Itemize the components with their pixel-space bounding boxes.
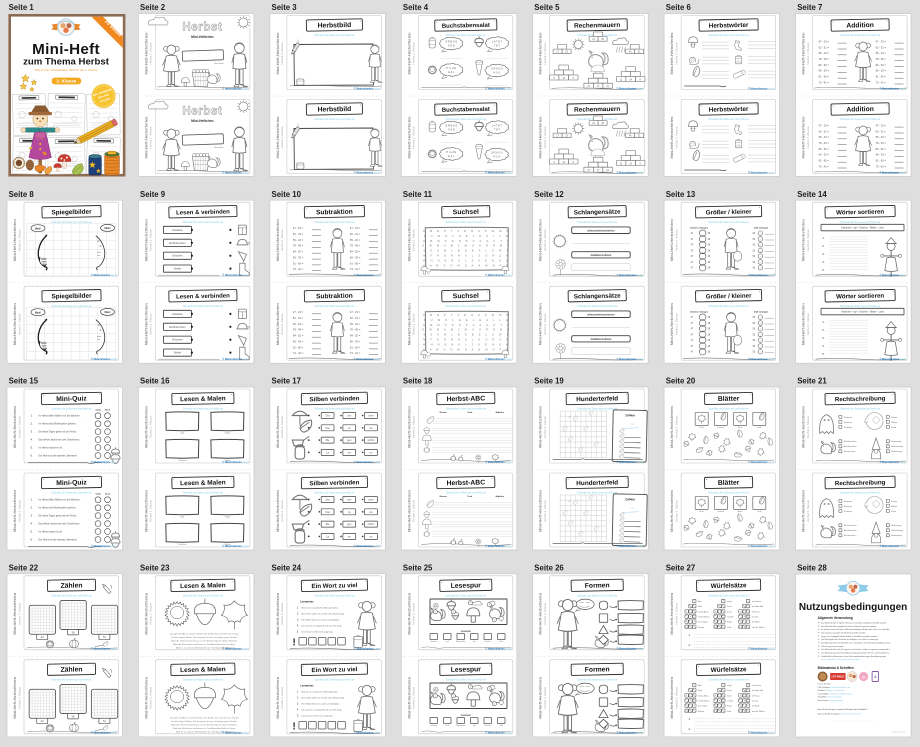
svg-text:schirm: schirm	[367, 439, 374, 442]
svg-text:Mini-Heft-Herbstferien: Mini-Heft-Herbstferien	[538, 219, 543, 262]
svg-text:73 - 41 =: 73 - 41 =	[819, 80, 830, 84]
svg-text:Mini-Heft-Herbstferien: Mini-Heft-Herbstferien	[275, 592, 280, 635]
svg-text:Laub: Laub	[445, 641, 449, 643]
svg-text:73 - 41 =: 73 - 41 =	[350, 267, 361, 271]
svg-text:Seite 10: Seite 10	[272, 190, 302, 199]
svg-text:84 - 52 =: 84 - 52 =	[350, 250, 361, 254]
svg-text:Herbst 2. Klasse: Herbst 2. Klasse	[149, 416, 153, 438]
svg-text:P I L Z E: P I L Z E	[447, 67, 457, 70]
svg-text:Seite 3: Seite 3	[272, 3, 298, 12]
svg-text:Regenschirm: Regenschirm	[456, 641, 466, 643]
svg-text:© Materialtanten wiese: © Materialtanten wiese	[91, 274, 118, 277]
svg-text:Mini-Heft-Herbstferien: Mini-Heft-Herbstferien	[801, 405, 806, 448]
svg-text:Lesen & Malen: Lesen & Malen	[180, 582, 226, 590]
svg-text:47 - 23 =: 47 - 23 =	[876, 40, 887, 44]
svg-text:Schneide die Seiten aus und he: Schneide die Seiten aus und hefte sie	[840, 408, 881, 411]
svg-text:Mini-Heft-Herbstferien: Mini-Heft-Herbstferien	[143, 32, 148, 75]
svg-text:im Haus: im Haus	[752, 611, 760, 613]
svg-text:Spiegelbilder: Spiegelbilder	[51, 209, 92, 217]
svg-text:Fühen: Fühen	[891, 417, 898, 419]
svg-text:Nutzungsbedingungen: Nutzungsbedingungen	[799, 602, 907, 613]
svg-text:Mini-Heft-Herbstferien: Mini-Heft-Herbstferien	[12, 592, 17, 635]
svg-text:55 - 24 =: 55 - 24 =	[819, 51, 830, 55]
svg-text:Schneide die Seiten aus und he: Schneide die Seiten aus und hefte sie	[840, 221, 881, 224]
svg-text:Seite 11: Seite 11	[403, 190, 433, 199]
svg-text:Lesen & Malen: Lesen & Malen	[180, 395, 226, 403]
svg-text:LTR WRLD: LTR WRLD	[832, 676, 845, 679]
svg-text:wirbastelneinendrachen: wirbastelneinendrachen	[587, 229, 615, 232]
svg-text:84 - 52 =: 84 - 52 =	[819, 63, 830, 67]
svg-text:Mini-Heft-Herbstferien: Mini-Heft-Herbstferien	[406, 32, 411, 75]
svg-text:Kastanie: Kastanie	[172, 228, 183, 232]
svg-text:© Materialtanten wiese: © Materialtanten wiese	[91, 648, 118, 651]
svg-text:© Materialtanten wiese: © Materialtanten wiese	[617, 274, 644, 277]
svg-text:Mini-Heft-Herbstferien: Mini-Heft-Herbstferien	[669, 405, 674, 448]
svg-text:Seite 2: Seite 2	[140, 3, 166, 12]
svg-text:Veröffentlichte Elemente ist e: Veröffentlichte Elemente ist eine Nutzun…	[821, 655, 887, 658]
svg-text:Seite 6: Seite 6	[666, 3, 692, 12]
svg-text:Herbst: Herbst	[182, 22, 222, 34]
svg-text:Föhen: Föhen	[891, 422, 898, 424]
svg-text:Seite 20: Seite 20	[666, 377, 696, 386]
svg-text:Würfelsätze: Würfelsätze	[711, 582, 747, 590]
svg-text:© Materialtanten wiese: © Materialtanten wiese	[748, 87, 775, 90]
svg-text:Schriften: Andika | Grundschri: Schriften: Andika | Grundschrift	[818, 689, 845, 692]
svg-text:© Materialtanten wiese: © Materialtanten wiese	[222, 461, 249, 464]
svg-text:Das Material darf in eigenen K: Das Material darf in eigenen Klassen ver…	[821, 621, 887, 624]
svg-text:Mini-Heft-Herbstferien: Mini-Heft-Herbstferien	[12, 405, 17, 448]
svg-text:Das Material darf auf Passwort: Das Material darf auf Passwortbereich ge…	[821, 652, 889, 655]
svg-text:Herbst 2. Klasse: Herbst 2. Klasse	[149, 229, 153, 251]
svg-text:ter: ter	[348, 451, 351, 454]
svg-text:chen: chen	[368, 415, 374, 418]
svg-text:malt: malt	[727, 626, 731, 629]
svg-text:© Materialwiese: © Materialwiese	[891, 731, 906, 734]
svg-text:Silben verbinden: Silben verbinden	[309, 395, 359, 403]
svg-text:73 - 41 =: 73 - 41 =	[876, 80, 887, 84]
svg-text:© Materialtanten wiese: © Materialtanten wiese	[748, 274, 775, 277]
svg-text:Herbst 2. Klasse: Herbst 2. Klasse	[280, 602, 284, 624]
svg-text:Lesespur: Lesespur	[461, 631, 471, 633]
svg-text:E Z L: E Z L	[448, 71, 455, 74]
svg-text:Tauschung ersetzt werden.: Tauschung ersetzt werden.	[821, 645, 845, 648]
svg-text:Mini-Heft-Herbstferien: Mini-Heft-Herbstferien	[669, 592, 674, 635]
svg-text:Hast du eine Frage zu meinem M: Hast du eine Frage zu meinem Material od…	[818, 708, 869, 711]
svg-text:che: che	[347, 415, 352, 418]
svg-text:Schneide die Seiten aus und he: Schneide die Seiten aus und hefte sie	[183, 408, 224, 411]
svg-text:Mini-Heft-Herbstferien: Mini-Heft-Herbstferien	[275, 219, 280, 262]
svg-text:Herbst 2. Klasse: Herbst 2. Klasse	[17, 602, 21, 624]
svg-text:47 - 23 =: 47 - 23 =	[350, 226, 361, 230]
svg-text:Eichhörnchen: Eichhörnchen	[844, 440, 858, 443]
svg-text:Seite 19: Seite 19	[534, 377, 564, 386]
svg-text:Seite 25: Seite 25	[403, 564, 433, 573]
svg-text:Aichhörnchen: Aichhörnchen	[844, 445, 858, 448]
svg-text:© Materialtanten wiese: © Materialtanten wiese	[880, 274, 907, 277]
svg-text:N F H D R H S L G O R Z N: N F H D R H S L G O R Z N	[423, 254, 510, 258]
svg-text:© Materialtanten wiese: © Materialtanten wiese	[354, 648, 381, 651]
svg-text:S A B O D M N A N M N F R: S A B O D M N A N M N F R	[423, 263, 510, 267]
svg-text:2.: 2.	[31, 422, 33, 426]
svg-text:!: !	[292, 636, 296, 648]
svg-text:Blatt ist ein zusätzliches Wor: Blatt ist ein zusätzliches Wort gefunden…	[301, 607, 338, 610]
svg-text:73 - 41 =: 73 - 41 =	[293, 267, 304, 271]
svg-text:Schneide die Seiten aus und he: Schneide die Seiten aus und hefte sie	[709, 221, 750, 224]
svg-text:Herbst 2. Klasse: Herbst 2. Klasse	[543, 229, 547, 251]
svg-text:4.: 4.	[31, 438, 33, 442]
svg-text:Mini-Heft-Herbstferien: Mini-Heft-Herbstferien	[801, 32, 806, 75]
svg-text:Seite 26: Seite 26	[534, 564, 564, 573]
svg-text:Seite 13: Seite 13	[666, 190, 696, 199]
svg-text:auf dem Hof: auf dem Hof	[752, 606, 764, 608]
svg-text:Das Material darf ausgedruckt: Das Material darf ausgedruckt und an Unt…	[821, 625, 877, 628]
svg-text:66 - 33 =: 66 - 33 =	[876, 69, 887, 73]
svg-text:Lernwörter:: Lernwörter:	[300, 600, 314, 603]
svg-text:47 - 23 =: 47 - 23 =	[819, 40, 830, 44]
svg-text:K U W O L G E L H A L L H: K U W O L G E L H A L L H	[424, 234, 510, 238]
svg-text:3.: 3.	[297, 619, 299, 622]
svg-text:Mini-Heft-Herbstferien: Mini-Heft-Herbstferien	[406, 219, 411, 262]
svg-text:© Materialtanten wiese: © Materialtanten wiese	[354, 461, 381, 464]
svg-text:Herbst 2. Klasse: Herbst 2. Klasse	[806, 42, 810, 64]
svg-text:4.: 4.	[297, 625, 299, 628]
svg-text:© Materialtanten wiese: © Materialtanten wiese	[617, 461, 644, 464]
svg-text:Seite 23: Seite 23	[140, 564, 170, 573]
svg-text:Mini-Heft-Herbstferien: Mini-Heft-Herbstferien	[669, 32, 674, 75]
svg-text:Seite 12: Seite 12	[534, 190, 564, 199]
svg-text:Schneide die Seiten aus und he: Schneide die Seiten aus und hefte sie	[577, 221, 618, 224]
svg-text:5: 5	[494, 620, 495, 622]
svg-text:fliegt: fliegt	[727, 621, 732, 624]
svg-text:Herbst 2. Klasse: Herbst 2. Klasse	[17, 416, 21, 438]
svg-text:55 - 24 =: 55 - 24 =	[293, 238, 304, 242]
svg-text:Der Herbst ist die warmste Jah: Der Herbst ist die warmste Jahreszeit.	[39, 455, 78, 458]
svg-text:1.: 1.	[822, 236, 825, 240]
svg-text:Kastanje: Kastanje	[844, 426, 853, 429]
svg-text:Bildmaterial & Schriften: Bildmaterial & Schriften	[818, 666, 854, 670]
svg-text:Dra: Dra	[326, 415, 331, 418]
svg-text:© Materialtanten wiese: © Materialtanten wiese	[485, 648, 512, 651]
svg-text:Herbst 2. Klasse: Herbst 2. Klasse	[674, 602, 678, 624]
svg-text:1.: 1.	[31, 414, 33, 418]
svg-text:Föhn: Föhn	[891, 427, 897, 429]
svg-text:Zahl eintragen: Zahl eintragen	[754, 226, 769, 229]
svg-text:62 - 31 =: 62 - 31 =	[350, 232, 361, 236]
svg-text:Buchstabensalat: Buchstabensalat	[442, 23, 490, 30]
svg-text:66 - 33 =: 66 - 33 =	[819, 69, 830, 73]
svg-text:62 - 31 =: 62 - 31 =	[293, 232, 304, 236]
svg-text:Schneide die Seiten aus und he: Schneide die Seiten aus und hefte sie	[183, 594, 224, 597]
svg-text:4: 4	[489, 605, 490, 607]
svg-text:Herbstwörter: Herbstwörter	[709, 22, 749, 30]
svg-text:Seite 9: Seite 9	[140, 190, 166, 199]
svg-text:Herbstbild: Herbstbild	[318, 22, 352, 30]
svg-text:Mini-Heft-Herbstferien: Mini-Heft-Herbstferien	[669, 219, 674, 262]
svg-text:Mini-Heft-Herbstferien: Mini-Heft-Herbstferien	[275, 32, 280, 75]
svg-text:Drachen: Drachen	[172, 254, 183, 258]
svg-text:Mini-Heft-Herbstferien: Mini-Heft-Herbstferien	[12, 219, 17, 262]
svg-text:1.: 1.	[689, 633, 692, 637]
svg-text:E R B H S: E R B H S	[446, 41, 458, 44]
svg-text:Kastanien - Igel - Drachen - B: Kastanien - Igel - Drachen - Blätter - L…	[841, 227, 884, 230]
svg-text:3: 3	[470, 603, 471, 605]
svg-text:Herbst 2. Klasse: Herbst 2. Klasse	[280, 42, 284, 64]
svg-text:84 - 52 =: 84 - 52 =	[876, 63, 887, 67]
svg-text:Mini-Heft-Herbstferien: Mini-Heft-Herbstferien	[406, 405, 411, 448]
svg-text:Stiefel: Stiefel	[174, 267, 182, 271]
svg-text:Zeichen eintragen: Zeichen eintragen	[690, 226, 709, 229]
svg-text:W H N E B K L Z K E N G M: W H N E B K L Z K E N G M	[423, 258, 510, 262]
svg-text:Seite 15: Seite 15	[9, 377, 39, 386]
svg-text:© Materialtanten wiese: © Materialtanten wiese	[354, 274, 381, 277]
svg-text:1.: 1.	[297, 607, 299, 610]
svg-text:Herbst-ABC: Herbst-ABC	[446, 395, 485, 403]
svg-text:© Materialtanten wiese: © Materialtanten wiese	[617, 87, 644, 90]
svg-text:© Materialtanten wiese: © Materialtanten wiese	[222, 87, 249, 90]
svg-text:D W M A M Z M U H R R M R: D W M A M Z M U H R R M R	[422, 244, 511, 248]
svg-text:gen: gen	[347, 439, 352, 442]
svg-text:© Materialtanten wiese: © Materialtanten wiese	[222, 274, 249, 277]
svg-text:im Wald: im Wald	[752, 622, 760, 624]
svg-text:Seite 28: Seite 28	[797, 564, 827, 573]
svg-text:Male die reife Kastanie braun: Male die reife Kastanie braun an. Die Ei…	[171, 639, 238, 642]
svg-text:Mein Name: Mein Name	[214, 63, 223, 65]
svg-text:Herbst 2. Klasse: Herbst 2. Klasse	[412, 602, 416, 624]
svg-text:Eiche: Eiche	[700, 427, 704, 429]
svg-text:Zahlen: Zahlen	[625, 413, 635, 417]
svg-text:91 - 60 =: 91 - 60 =	[293, 261, 304, 265]
svg-text:Seite 1: Seite 1	[9, 3, 35, 12]
svg-text:G M M O D N P U K G K T L: G M M O D N P U K G K T L	[423, 239, 511, 243]
svg-text:Herbswerg: Herbswerg	[891, 440, 902, 443]
svg-text:Seite 24: Seite 24	[272, 564, 302, 573]
svg-text:Mini-Heft-Herbstferien: Mini-Heft-Herbstferien	[538, 405, 543, 448]
svg-text:Das Wetter ändert hat viele Ge: Das Wetter ändert hat viele Geschirmen.	[39, 439, 81, 442]
svg-text:S G K M L B D B S L U W T: S G K M L B D B S L U W T	[423, 249, 510, 253]
svg-text:© Materialtanten wiese: © Materialtanten wiese	[91, 461, 118, 464]
svg-text:Seite 21: Seite 21	[797, 377, 827, 386]
svg-text:Addition: Addition	[846, 22, 874, 30]
svg-text:Herbst 2. Klasse: Herbst 2. Klasse	[280, 229, 284, 251]
svg-text:Formen: Formen	[585, 582, 610, 590]
svg-text:Herbst 2. Klasse: Herbst 2. Klasse	[412, 229, 416, 251]
svg-text:Schneide die Seiten aus und he: Schneide die Seiten aus und hefte sie	[709, 594, 750, 597]
svg-text:Linde: Linde	[757, 427, 761, 429]
svg-text:Illustrationen: educlips-desig: Illustrationen: educlips-design	[818, 699, 844, 702]
svg-text:Herbst 2. Klasse: Herbst 2. Klasse	[806, 229, 810, 251]
svg-text:91 - 60 =: 91 - 60 =	[876, 75, 887, 79]
svg-text:© Materialtanten wiese: © Materialtanten wiese	[485, 461, 512, 464]
svg-text:Wörter sortieren: Wörter sortieren	[836, 208, 884, 216]
svg-text:Seite 22: Seite 22	[9, 564, 39, 573]
svg-text:© Materialtanten wiese: © Materialtanten wiese	[748, 461, 775, 464]
svg-text:Ahorn: Ahorn	[738, 426, 743, 429]
svg-text:Adjektiv: Adjektiv	[496, 411, 505, 414]
svg-text:S H B: S H B	[448, 45, 455, 48]
svg-text:T B T: T B T	[494, 44, 500, 47]
svg-text:2.: 2.	[822, 244, 825, 248]
svg-text:3.: 3.	[31, 430, 33, 434]
svg-text:Kastanie: Kastanie	[718, 426, 725, 429]
svg-text:62 - 31 =: 62 - 31 =	[819, 45, 830, 49]
svg-text:Mein Wort stellte ich schnell: Mein Wort stellte ich schnell und selbst…	[301, 613, 344, 616]
svg-text:91 - 60 =: 91 - 60 =	[819, 75, 830, 79]
svg-text:Die Mona Tagen gehst mit ein F: Die Mona Tagen gehst mit ein Freind.	[39, 431, 77, 434]
svg-text:Seite 16: Seite 16	[140, 377, 170, 386]
svg-text:Herbst 2. Klasse: Herbst 2. Klasse	[806, 416, 810, 438]
svg-text:Cover-Bilder: www.kate.hadfiel: Cover-Bilder: www.kate.hadfield.designs	[818, 692, 853, 695]
svg-text:Der Vogel: Der Vogel	[698, 621, 708, 624]
svg-text:Seite 18: Seite 18	[403, 377, 433, 386]
svg-text:Emma: Emma	[698, 627, 705, 629]
svg-text:Schneide die Seiten aus und he: Schneide die Seiten aus und hefte sie	[709, 408, 750, 411]
svg-text:Herbst 2. Klasse: Herbst 2. Klasse	[674, 416, 678, 438]
svg-text:Mini-Heft-Herbstferien: Mini-Heft-Herbstferien	[275, 405, 280, 448]
svg-text:Onkel Murat: Onkel Murat	[698, 616, 710, 619]
svg-text:© Materialtanten wiese: © Materialtanten wiese	[222, 648, 249, 651]
svg-text:Seite 5: Seite 5	[534, 3, 560, 12]
svg-text:Schneide die Seiten aus und he: Schneide die Seiten aus und hefte sie	[314, 221, 355, 224]
svg-text:Herbstzwerg: Herbstzwerg	[891, 445, 904, 448]
svg-text:Drachen: Drachen	[178, 459, 187, 462]
svg-text:78 - 45 =: 78 - 45 =	[819, 57, 830, 61]
svg-text:Schneide die Seiten aus und he: Schneide die Seiten aus und hefte sie	[314, 408, 355, 411]
svg-text:Rechenmauern: Rechenmauern	[574, 22, 620, 30]
svg-text:Lesen & verbinden: Lesen & verbinden	[176, 209, 230, 216]
svg-text:Mini-Quiz: Mini-Quiz	[56, 395, 87, 403]
svg-text:Schneide die Seiten aus und he: Schneide die Seiten aus und hefte sie	[709, 34, 750, 37]
svg-text:Seite 14: Seite 14	[797, 190, 827, 199]
svg-text:78 - 45 =: 78 - 45 =	[350, 244, 361, 248]
svg-text:Suchsel: Suchsel	[453, 209, 479, 217]
svg-text:66 - 33 =: 66 - 33 =	[293, 255, 304, 259]
svg-text:Vogel: Vogel	[225, 433, 231, 435]
svg-text:66 - 33 =: 66 - 33 =	[350, 255, 361, 259]
svg-text:© Materialtanten wiese: © Materialtanten wiese	[880, 461, 907, 464]
svg-text:im Garten: im Garten	[752, 600, 762, 603]
svg-text:Seite 17: Seite 17	[272, 377, 301, 386]
svg-text:Schneide die Seiten aus und he: Schneide die Seiten aus und hefte sie	[577, 408, 618, 411]
svg-text:Mini-Heft-Herbstferien: Mini-Heft-Herbstferien	[143, 592, 148, 635]
svg-text:© Materialtanten wiese: © Materialtanten wiese	[485, 87, 512, 90]
svg-text:Herbst 2. Klasse: Herbst 2. Klasse	[543, 42, 547, 64]
svg-text:Seite 8: Seite 8	[9, 190, 35, 199]
svg-text:Herr Müller Bauman wartet am S: Herr Müller Bauman wartet am Spielplatz.	[301, 619, 340, 622]
svg-text:Im Herbst wird Weihnachten gef: Im Herbst wird Weihnachten gefeiert.	[39, 423, 77, 426]
svg-text:Herbst 2. Klasse: Herbst 2. Klasse	[412, 416, 416, 438]
svg-text:Im Herbst fallen Blätter von d: Im Herbst fallen Blätter von den Bäumen.	[39, 415, 81, 418]
svg-text:© Materialtanten wiese: © Materialtanten wiese	[748, 648, 775, 651]
svg-text:2.: 2.	[689, 643, 692, 647]
svg-text:Herbst 2. Klasse: Herbst 2. Klasse	[17, 229, 21, 251]
svg-text:Herbst 2. Klasse: Herbst 2. Klasse	[149, 42, 153, 64]
svg-text:Schneide die Seiten aus und he: Schneide die Seiten aus und hefte sie	[314, 594, 355, 597]
svg-text:Male!: Male!	[104, 227, 110, 230]
svg-text:Schneide die Seiten aus und he: Schneide die Seiten aus und hefte sie	[314, 34, 355, 37]
svg-text:Verb: Verb	[467, 412, 472, 414]
svg-text:Mini-Heft-Herbstferien: Mini-Heft-Herbstferien	[143, 405, 148, 448]
svg-text:kp: kp	[862, 675, 866, 679]
svg-text:© Materialtanten wiese: © Materialtanten wiese	[617, 648, 644, 651]
svg-text:Die Igel und Mäuse sind im Her: Die Igel und Mäuse sind im Herbst sehr f…	[170, 632, 240, 635]
svg-text:Herbst 2. Klasse: Herbst 2. Klasse	[412, 42, 416, 64]
svg-text:zum Thema Herbst: zum Thema Herbst	[23, 56, 110, 67]
svg-text:6.: 6.	[31, 454, 33, 458]
svg-text:Eichhörnchen: Eichhörnchen	[169, 241, 186, 245]
svg-text:Schneide die Seiten aus und he: Schneide die Seiten aus und hefte sie	[51, 408, 92, 411]
svg-text:2: 2	[453, 612, 454, 614]
svg-text:Seite 7: Seite 7	[797, 3, 822, 12]
svg-text:Rechtschreibung: Rechtschreibung	[835, 395, 886, 403]
svg-text:lacht: lacht	[727, 605, 732, 608]
svg-text:55 - 24 =: 55 - 24 =	[350, 238, 361, 242]
svg-text:Schneide die Seiten aus und he: Schneide die Seiten aus und hefte sie	[577, 594, 618, 597]
svg-text:hallo@materialwiese.de: hallo@materialwiese.de	[840, 713, 862, 716]
svg-text:Logo- und Copyright-Inhalte dü: Logo- und Copyright-Inhalte dürfen in de…	[821, 635, 878, 638]
svg-text:Mini-Heft-Herbstferien: Mini-Heft-Herbstferien	[538, 592, 543, 635]
svg-text:Hunderterfeld: Hunderterfeld	[576, 395, 618, 403]
svg-text:Schneide die Seiten aus und he: Schneide die Seiten aus und hefte sie	[446, 221, 487, 224]
svg-text:62 - 31 =: 62 - 31 =	[876, 45, 887, 49]
svg-text:5.: 5.	[31, 446, 33, 450]
svg-text:Herbst 2. Klasse: Herbst 2. Klasse	[149, 602, 153, 624]
svg-text:Herbst 2. Klasse: Herbst 2. Klasse	[280, 416, 284, 438]
svg-text:5.: 5.	[822, 268, 825, 272]
svg-text:2.: 2.	[297, 613, 299, 616]
svg-text:Subtraktion: Subtraktion	[316, 209, 353, 217]
svg-text:auf der Wiese: auf der Wiese	[752, 626, 766, 629]
svg-text:D R A C H: D R A C H	[491, 68, 503, 71]
svg-text:47 - 23 =: 47 - 23 =	[293, 226, 304, 230]
svg-text:Male die Eichel grün und braun: Male die Eichel grün und braun an. Das A…	[173, 643, 236, 646]
svg-text:richtig: richtig	[95, 408, 101, 411]
svg-text:L A T B T: L A T B T	[492, 40, 503, 43]
svg-text:© Materialtanten wiese: © Materialtanten wiese	[485, 274, 512, 277]
svg-text:84 - 52 =: 84 - 52 =	[293, 250, 304, 254]
svg-text:Tante Anna: Tante Anna	[698, 610, 709, 613]
svg-text:Herbtswerg: Herbtswerg	[891, 450, 902, 453]
svg-text:Schlangensätze: Schlangensätze	[574, 208, 621, 216]
svg-text:78 - 45 =: 78 - 45 =	[293, 244, 304, 248]
svg-text:Schneide die Seiten aus und he: Schneide die Seiten aus und hefte sie	[51, 594, 92, 597]
svg-text:kein gespeist auf oder elle We: kein gespeist auf oder elle Weiterverwen…	[821, 632, 866, 635]
svg-text:Drachen: Drachen	[485, 641, 491, 643]
svg-text:78 - 45 =: 78 - 45 =	[876, 57, 887, 61]
svg-text:H C A: H C A	[494, 72, 501, 75]
svg-text:Dann schreibe mir gerne:: Dann schreibe mir gerne:	[818, 714, 841, 716]
svg-text:tanzt: tanzt	[727, 610, 732, 613]
svg-text:Kita-Bilder: lehrermarktplatz: Kita-Bilder: lehrermarktplatz	[818, 696, 842, 699]
svg-text:Lizenz & Preise:: Lizenz & Preise:	[818, 684, 832, 686]
svg-text:Das Material darf nicht Woande: Das Material darf nicht Woanders als, ko…	[821, 642, 890, 645]
svg-text:91 - 60 =: 91 - 60 =	[350, 261, 361, 265]
svg-text:Herbst 2. Klasse: Herbst 2. Klasse	[674, 42, 678, 64]
svg-text:Lesespur: Lesespur	[451, 582, 482, 590]
svg-text:Mini-Heft-Herbstferien: Mini-Heft-Herbstferien	[801, 219, 806, 262]
svg-text:Das Material darf nicht als ei: Das Material darf nicht als eigenes zum …	[821, 648, 891, 651]
svg-text:für den langen Winter. Die Kas: für den langen Winter. Die Kastanie hat …	[171, 636, 237, 639]
svg-text:Es können weiter Schüler- & El: Es können weiter Schüler- & Elternvertei…	[821, 628, 890, 631]
svg-text:Größer / kleiner: Größer / kleiner	[706, 209, 752, 217]
svg-text:Kaztanie: Kaztanie	[844, 421, 853, 424]
svg-text:Herbst 2. Klasse: Herbst 2. Klasse	[674, 229, 678, 251]
svg-text:Die Laterne ist angemalt und z: Die Laterne ist angemalt und zum Teil fe…	[301, 625, 342, 628]
svg-text:Im Herbst regnet es oft.: Im Herbst regnet es oft.	[39, 447, 63, 450]
svg-text:PDF-Vorlagen: www.materialwies: PDF-Vorlagen: www.materialwiese.de	[818, 686, 850, 689]
svg-text:Ein Wort zu viel: Ein Wort zu viel	[311, 582, 357, 590]
svg-text:schläft: schläft	[727, 616, 733, 619]
svg-text:Schneide die Seiten aus und he: Schneide die Seiten aus und hefte sie	[446, 594, 487, 597]
